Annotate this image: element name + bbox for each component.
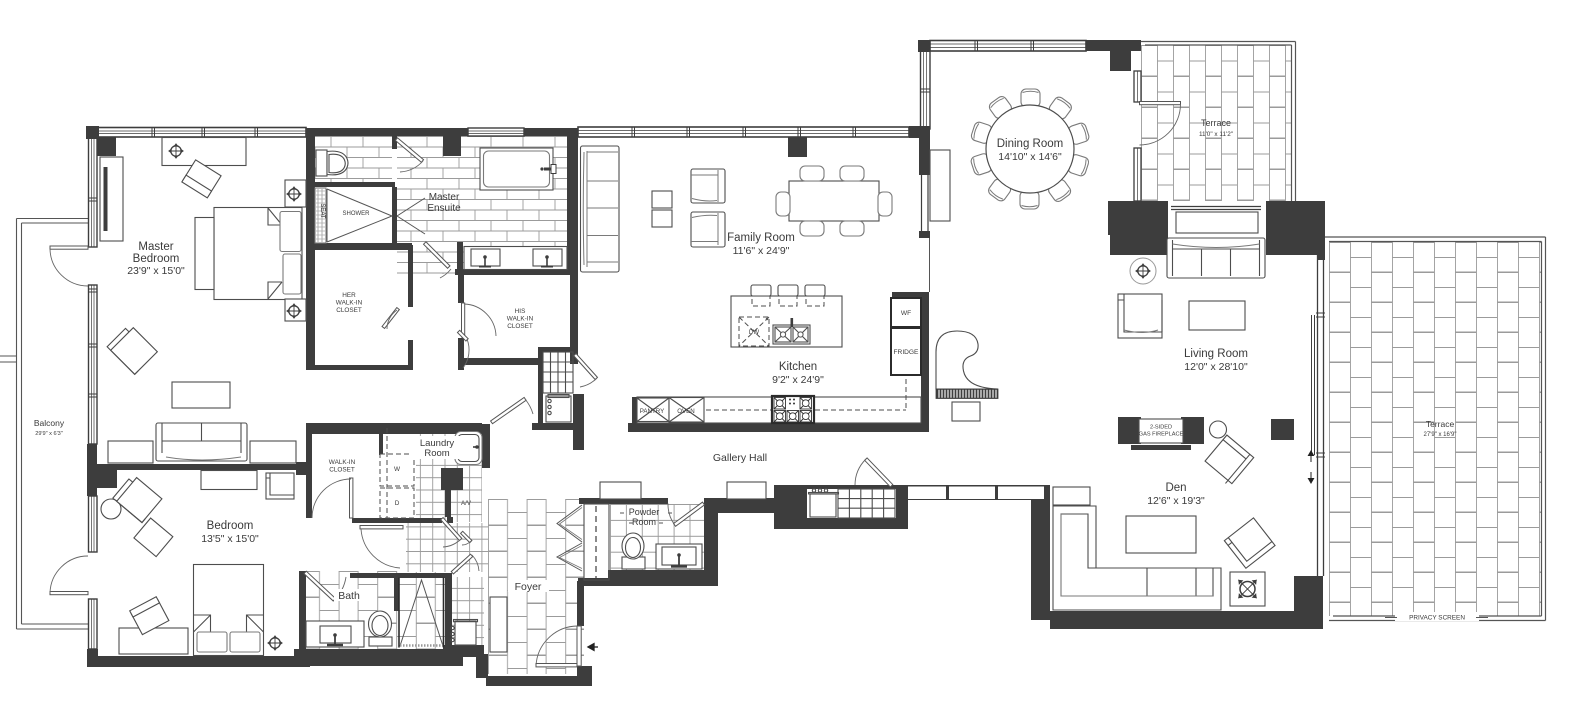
svg-text:12'6" x 19'3": 12'6" x 19'3" xyxy=(1147,495,1205,507)
svg-text:PRIVACY SCREEN: PRIVACY SCREEN xyxy=(1409,615,1465,622)
svg-text:Dining Room: Dining Room xyxy=(997,138,1063,150)
svg-text:W: W xyxy=(394,466,401,473)
svg-text:OVEN: OVEN xyxy=(677,408,695,415)
svg-text:WALK-IN: WALK-IN xyxy=(507,316,534,323)
svg-text:WF: WF xyxy=(901,310,911,317)
svg-text:Master: Master xyxy=(138,241,173,253)
svg-text:Foyer: Foyer xyxy=(515,581,542,593)
svg-text:11'6" x 24'9": 11'6" x 24'9" xyxy=(733,245,790,257)
svg-text:Bath: Bath xyxy=(338,590,360,602)
svg-text:13'5" x 15'0": 13'5" x 15'0" xyxy=(201,533,259,545)
svg-text:Den: Den xyxy=(1165,482,1186,494)
svg-text:Bedroom: Bedroom xyxy=(207,520,254,532)
svg-text:CLOSET: CLOSET xyxy=(329,467,355,474)
svg-text:Gallery Hall: Gallery Hall xyxy=(713,452,767,464)
svg-text:WALK-IN: WALK-IN xyxy=(336,300,363,307)
svg-text:Powder: Powder xyxy=(629,507,660,517)
svg-text:CLOSET: CLOSET xyxy=(336,307,362,314)
svg-text:Bedroom: Bedroom xyxy=(133,253,180,265)
svg-text:9'2" x 24'9": 9'2" x 24'9" xyxy=(772,374,824,386)
svg-text:Family Room: Family Room xyxy=(727,232,795,244)
svg-text:HER: HER xyxy=(342,292,356,299)
svg-text:PANTRY: PANTRY xyxy=(640,408,665,415)
svg-text:SEAT: SEAT xyxy=(319,203,325,219)
svg-text:23'9" x 15'0": 23'9" x 15'0" xyxy=(127,265,185,277)
svg-text:HIS: HIS xyxy=(515,308,526,315)
svg-text:SHOWER: SHOWER xyxy=(343,211,371,217)
svg-text:Room: Room xyxy=(632,517,656,527)
svg-text:2-SIDED: 2-SIDED xyxy=(1150,425,1172,431)
svg-text:WALK-IN: WALK-IN xyxy=(329,459,356,466)
svg-text:DW: DW xyxy=(749,329,759,336)
svg-text:A/V: A/V xyxy=(461,500,472,507)
svg-text:Terrace: Terrace xyxy=(1426,419,1455,429)
svg-text:FRIDGE: FRIDGE xyxy=(894,349,920,356)
svg-text:CLOSET: CLOSET xyxy=(507,323,533,330)
svg-text:Ensuite: Ensuite xyxy=(427,203,461,214)
svg-text:11'0" x 11'2": 11'0" x 11'2" xyxy=(1199,131,1233,138)
svg-text:Kitchen: Kitchen xyxy=(779,361,817,373)
svg-text:Living Room: Living Room xyxy=(1184,348,1248,360)
svg-text:D: D xyxy=(395,500,400,507)
svg-text:Master: Master xyxy=(429,192,460,203)
svg-text:27'9" x 16'9": 27'9" x 16'9" xyxy=(1424,432,1457,438)
svg-text:14'10" x 14'6": 14'10" x 14'6" xyxy=(998,151,1062,163)
svg-text:GAS FIREPLACE: GAS FIREPLACE xyxy=(1139,432,1184,438)
svg-text:12'0" x 28'10": 12'0" x 28'10" xyxy=(1184,361,1248,373)
svg-text:29'9" x 6'3": 29'9" x 6'3" xyxy=(35,431,63,437)
svg-text:Terrace: Terrace xyxy=(1201,118,1231,128)
svg-text:Balcony: Balcony xyxy=(34,418,65,428)
svg-text:Room: Room xyxy=(424,448,449,459)
